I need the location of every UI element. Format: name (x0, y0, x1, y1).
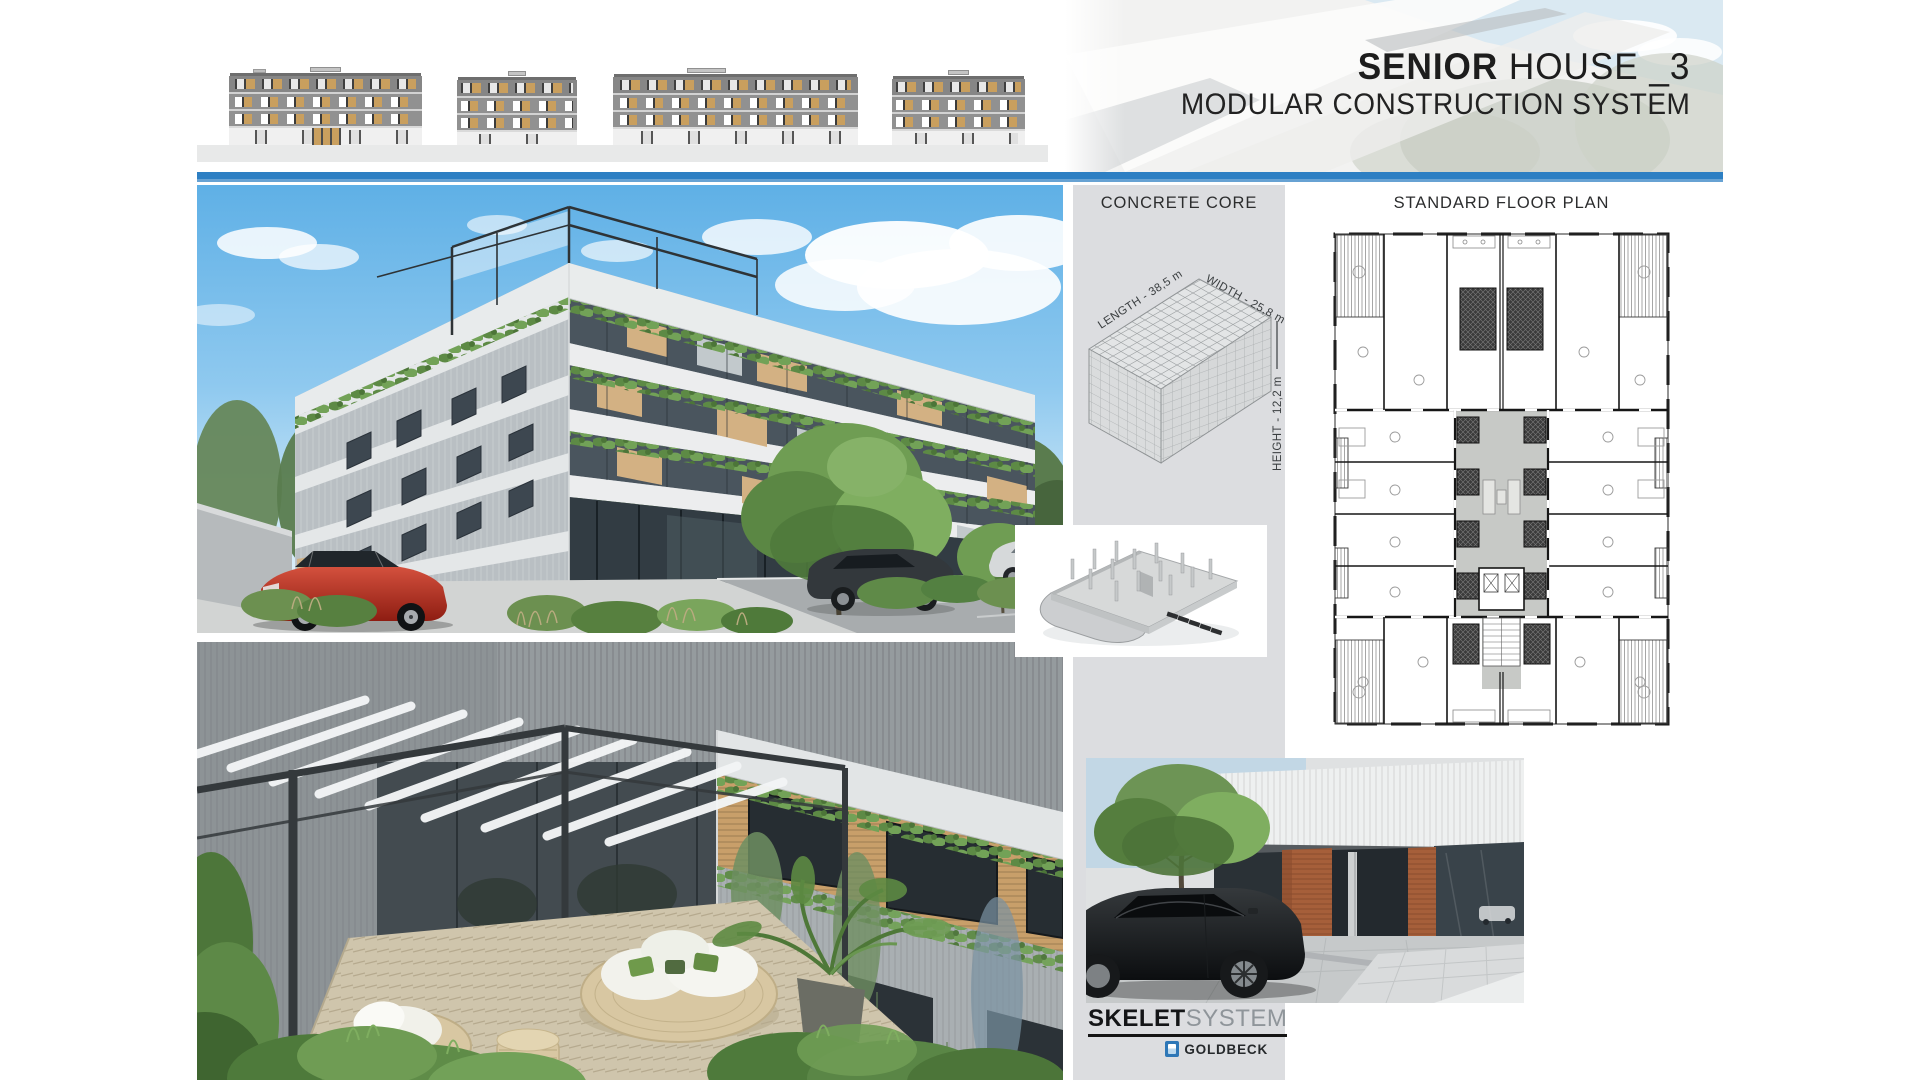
elevation-drawing-2 (457, 77, 577, 145)
main-exterior-render (197, 185, 1063, 633)
header-titles: SENIOR HOUSE _3 MODULAR CONSTRUCTION SYS… (1180, 48, 1690, 121)
terrace-render-photo (197, 642, 1063, 1080)
concrete-core-heading: CONCRETE CORE (1073, 194, 1285, 213)
elevation-floor (613, 93, 858, 110)
entrance-render-photo (1086, 758, 1524, 1003)
presentation-board: SENIOR HOUSE _3 MODULAR CONSTRUCTION SYS… (0, 0, 1920, 1080)
header-photo: SENIOR HOUSE _3 MODULAR CONSTRUCTION SYS… (1065, 0, 1723, 172)
elevation-ground-floor (892, 129, 1025, 145)
elevation-floor (229, 109, 422, 126)
elevation-attic-floor (457, 80, 577, 96)
skeletsystem-logo-primary: SKELET (1088, 1005, 1186, 1032)
page-title-primary: SENIOR (1357, 46, 1497, 87)
wireframe-lattice (1089, 279, 1271, 463)
page-subtitle: MODULAR CONSTRUCTION SYSTEM (1180, 90, 1690, 121)
floor-plan-art (1333, 232, 1670, 726)
elevation-floor (892, 112, 1025, 129)
elevation-attic-floor (613, 77, 858, 93)
elevations-ground-strip (197, 145, 1048, 162)
goldbeck-logo-text: GOLDBECK (1184, 1042, 1268, 1057)
elevation-attic-floor (892, 79, 1025, 95)
standard-floor-plan-drawing (1333, 232, 1670, 726)
black-car (1086, 888, 1316, 1000)
elevation-floor (457, 96, 577, 113)
height-dimension-label: HEIGHT - 12,2 m (1272, 376, 1284, 471)
elevation-ground-floor (613, 127, 858, 145)
concrete-core-diagram: LENGTH - 38,5 m WIDTH - 25,8 m HEIGHT - … (1073, 221, 1285, 491)
elevation-ground-floor (229, 126, 422, 145)
accent-divider-bar (197, 172, 1723, 182)
concrete-skeleton (1040, 541, 1237, 642)
elevation-drawing-4 (892, 76, 1025, 145)
page-title-secondary: HOUSE _3 (1498, 46, 1690, 87)
core-3d-render (1021, 531, 1261, 651)
main-exterior-render-art (197, 185, 1063, 633)
core-3d-render-box (1015, 525, 1267, 657)
footer-logos: SKELETSYSTEM GOLDBECK (1088, 1005, 1268, 1057)
terrace-render-art (197, 642, 1063, 1080)
elevation-floor (613, 110, 858, 127)
skeletsystem-logo-secondary: SYSTEM (1186, 1005, 1288, 1032)
page-title: SENIOR HOUSE _3 (1180, 48, 1690, 87)
elevation-floor (892, 95, 1025, 112)
elevation-drawing-1 (229, 73, 422, 145)
elevation-drawing-3 (613, 74, 858, 145)
elevation-ground-floor (457, 130, 577, 145)
elevation-floor (229, 92, 422, 109)
elevation-floor (457, 113, 577, 130)
elevation-attic-floor (229, 76, 422, 92)
entrance-render-art (1086, 758, 1524, 1003)
skeletsystem-logo: SKELETSYSTEM (1088, 1005, 1287, 1037)
goldbeck-logo: GOLDBECK (1088, 1041, 1268, 1057)
goldbeck-logo-icon (1165, 1041, 1179, 1057)
floor-plan-heading: STANDARD FLOOR PLAN (1333, 194, 1670, 213)
